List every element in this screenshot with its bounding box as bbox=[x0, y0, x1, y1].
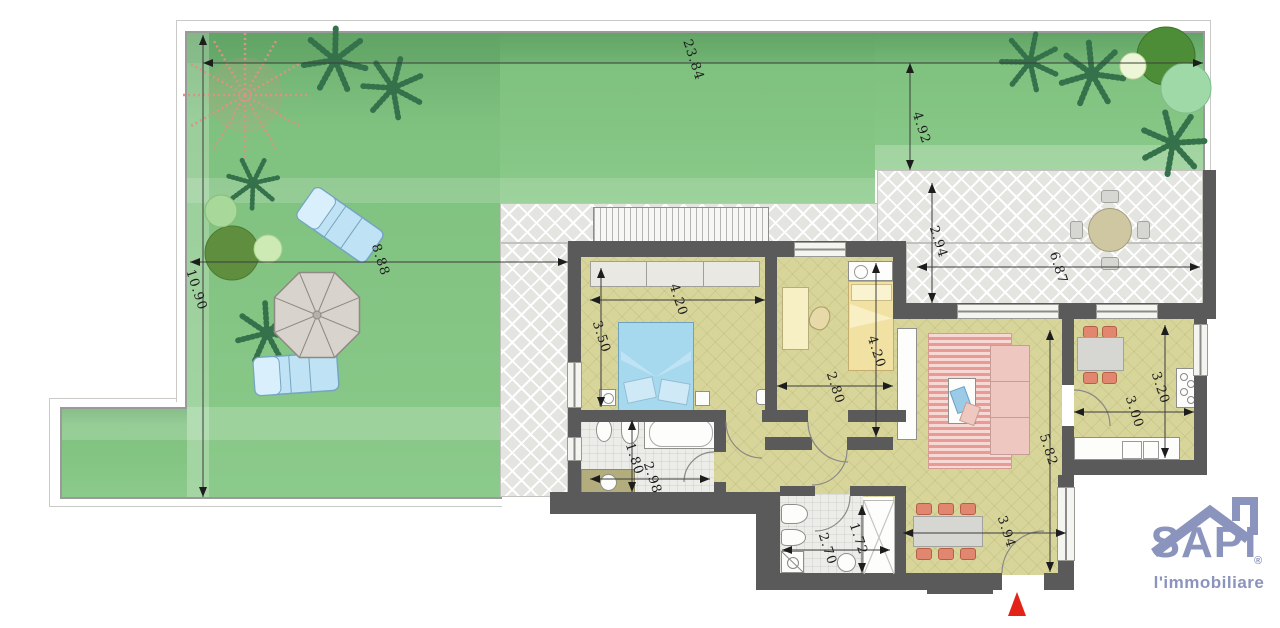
fern-tree bbox=[217, 20, 1211, 369]
dimension-arrow bbox=[199, 35, 207, 45]
dimension-arrow bbox=[1046, 562, 1054, 572]
dimension-arrow bbox=[597, 268, 605, 278]
pink-tree bbox=[183, 33, 307, 157]
dimension-arrow bbox=[928, 183, 936, 193]
dimension-arrow bbox=[203, 59, 213, 67]
dimension-arrow bbox=[190, 258, 200, 266]
registered-trademark-icon: ® bbox=[1254, 555, 1262, 567]
dimension-arrow bbox=[903, 529, 913, 537]
dimension-arrow bbox=[1056, 529, 1066, 537]
dimension-arrow bbox=[883, 382, 893, 390]
shower-glass-lines bbox=[864, 501, 894, 574]
logo-tagline: l'immobiliare bbox=[1148, 573, 1270, 593]
dimension-arrow bbox=[1190, 263, 1200, 271]
dimension-arrow bbox=[700, 475, 710, 483]
door-arc bbox=[684, 390, 1110, 573]
logo-brand: SAPI bbox=[1148, 521, 1260, 565]
dimension-arrow bbox=[917, 263, 927, 271]
dimension-arrow bbox=[1184, 408, 1194, 416]
dimension-arrow bbox=[590, 475, 600, 483]
dimension-arrow bbox=[558, 258, 568, 266]
dimension-arrow bbox=[199, 487, 207, 497]
dimension-arrow bbox=[597, 397, 605, 407]
dimension-arrow bbox=[906, 160, 914, 170]
dimension-arrow bbox=[858, 505, 866, 515]
dimension-arrow bbox=[872, 427, 880, 437]
dimension-arrow bbox=[872, 263, 880, 273]
agency-logo: SAPI ® l'immobiliare bbox=[1148, 497, 1270, 627]
dimension-arrow bbox=[1161, 448, 1169, 458]
dimension-arrow bbox=[628, 482, 636, 492]
dimension-arrow bbox=[906, 63, 914, 73]
washing-machine-mark bbox=[781, 551, 804, 573]
dimension-arrow bbox=[1074, 408, 1084, 416]
dimension-arrow bbox=[628, 420, 636, 430]
parasol-umbrella bbox=[275, 273, 360, 358]
dimension-arrow bbox=[590, 296, 600, 304]
entrance-marker bbox=[1008, 592, 1026, 616]
floor-plan: 23.844.9210.908.882.946.874.203.504.202.… bbox=[0, 0, 1280, 628]
plan-svg-overlay bbox=[0, 0, 1280, 628]
dimension-arrow bbox=[928, 293, 936, 303]
dimension-arrow bbox=[1046, 330, 1054, 340]
dimension-arrow bbox=[777, 382, 787, 390]
dimension-arrow bbox=[1161, 325, 1169, 335]
dimension-arrow bbox=[755, 296, 765, 304]
